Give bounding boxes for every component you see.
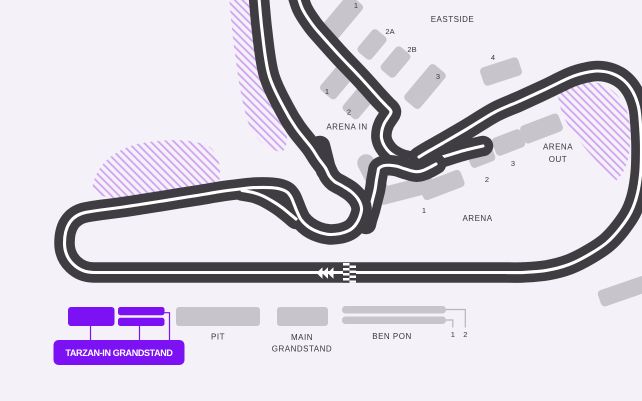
svg-text:2B: 2B: [407, 45, 416, 54]
svg-text:3: 3: [436, 72, 440, 81]
svg-text:MAIN: MAIN: [291, 333, 313, 342]
svg-text:ARENA IN: ARENA IN: [326, 123, 367, 132]
svg-text:1: 1: [325, 87, 329, 96]
svg-text:2: 2: [463, 330, 467, 339]
svg-text:ARENA: ARENA: [462, 214, 492, 223]
svg-text:OUT: OUT: [549, 155, 567, 164]
svg-text:PIT: PIT: [211, 333, 225, 342]
svg-text:2A: 2A: [385, 27, 394, 36]
svg-text:1: 1: [451, 330, 455, 339]
svg-text:1: 1: [422, 206, 426, 215]
svg-text:BEN PON: BEN PON: [372, 332, 412, 341]
svg-text:EASTSIDE: EASTSIDE: [431, 15, 475, 24]
svg-text:TARZAN-IN GRANDSTAND: TARZAN-IN GRANDSTAND: [65, 348, 173, 358]
svg-text:2: 2: [485, 175, 489, 184]
svg-text:ARENA: ARENA: [543, 143, 573, 152]
svg-text:4: 4: [491, 53, 495, 62]
svg-text:1: 1: [354, 1, 358, 10]
svg-text:2: 2: [347, 108, 351, 117]
svg-text:GRANDSTAND: GRANDSTAND: [272, 345, 332, 354]
svg-text:3: 3: [511, 159, 515, 168]
